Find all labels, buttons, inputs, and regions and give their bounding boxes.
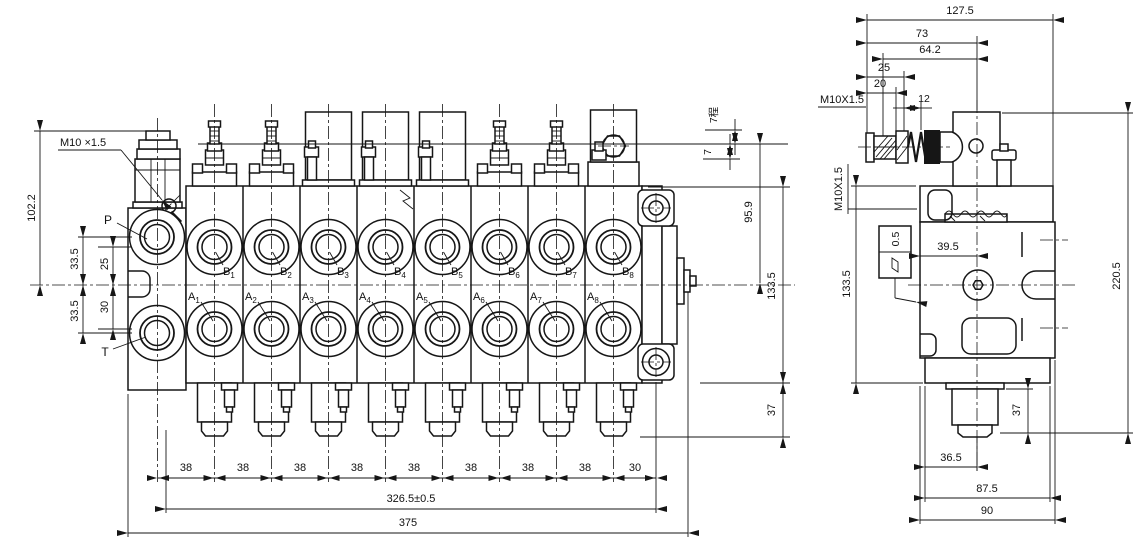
- dim-pitch-6: 38: [465, 462, 477, 474]
- dim-stroke: 7程 7: [702, 106, 742, 170]
- dim-127: 127.5: [946, 5, 974, 17]
- dim-95-9: 95.9: [743, 201, 755, 222]
- bottom-plug-3: [312, 383, 352, 436]
- dim-pitch-chain: 38 38 38 38 38 38 38 38 30: [147, 462, 667, 481]
- dim-pitch-1: 38: [180, 462, 192, 474]
- dim-p-offset: 33.5: [69, 248, 81, 269]
- dim-87: 87.5: [976, 483, 997, 495]
- flatness-icon: [892, 258, 898, 272]
- bottom-plug-4: [369, 383, 409, 436]
- dim-pitch-2: 38: [237, 462, 249, 474]
- dim-39: 39.5: [937, 241, 958, 253]
- side-view: 127.5 73 64.2 25 20 M10X1.5 12 M10X1.5: [818, 5, 1133, 524]
- valve-section-bodies: [186, 186, 642, 383]
- dim-pitch-8: 38: [579, 462, 591, 474]
- bottom-plug-7: [540, 383, 580, 436]
- thread-label-side-top: M10X1.5: [820, 94, 864, 106]
- dim-height-102: 102.2: [26, 194, 38, 222]
- thread-label-side-left: M10X1.5: [833, 167, 845, 211]
- end-plate-bracket: [638, 186, 696, 383]
- dim-37-front: 37: [766, 404, 778, 416]
- port-p-circle: [130, 210, 185, 265]
- dim-133-side: 133.5: [841, 270, 853, 298]
- dim-20: 20: [874, 78, 886, 90]
- dim-stroke-down: 7: [702, 149, 714, 155]
- dim-pitch-7: 38: [522, 462, 534, 474]
- port-label-t: T: [101, 345, 109, 359]
- dim-64: 64.2: [919, 44, 940, 56]
- dim-25: 25: [878, 62, 890, 74]
- bottom-plug-2: [255, 383, 295, 436]
- flatness-value: 0.5: [890, 232, 902, 247]
- dim-220: 220.5: [1111, 262, 1123, 290]
- drawing-page: P T B1 B2 B3 B4 B5 B6 B7 B8 A1 A2 A3: [0, 0, 1140, 557]
- port-t-circle: [130, 306, 185, 361]
- bottom-plug-6: [483, 383, 523, 436]
- dim-73: 73: [916, 28, 928, 40]
- dim-stroke-up: 7程: [708, 106, 720, 123]
- dim-12: 12: [918, 93, 930, 105]
- dim-pitch-5: 38: [408, 462, 420, 474]
- poppet: [940, 132, 962, 162]
- front-view: P T B1 B2 B3 B4 B5 B6 B7 B8 A1 A2 A3: [26, 104, 795, 537]
- port-label-p: P: [104, 213, 112, 227]
- technical-drawing: P T B1 B2 B3 B4 B5 B6 B7 B8 A1 A2 A3: [0, 0, 1140, 557]
- dim-90: 90: [981, 505, 993, 517]
- bottom-plug-5: [426, 383, 466, 436]
- dim-37-side: 37: [1011, 404, 1023, 416]
- dim-b-offset: 25: [99, 258, 111, 270]
- dim-total-mid-label: 326.5±0.5: [387, 493, 436, 505]
- flatness-frame: 0.5: [879, 226, 916, 302]
- dim-t-offset: 33.5: [69, 300, 81, 321]
- thread-label-front: M10 ×1.5: [60, 137, 106, 149]
- bottom-plug-8: [597, 383, 637, 436]
- dim-pitch-3: 38: [294, 462, 306, 474]
- bottom-plug-1: [198, 383, 238, 436]
- dim-total-label: 375: [399, 517, 417, 529]
- dim-pitch-4: 38: [351, 462, 363, 474]
- dim-pitch-end: 30: [629, 462, 641, 474]
- dim-36: 36.5: [940, 452, 961, 464]
- dim-133-front: 133.5: [766, 272, 778, 300]
- dim-a-offset: 30: [99, 301, 111, 313]
